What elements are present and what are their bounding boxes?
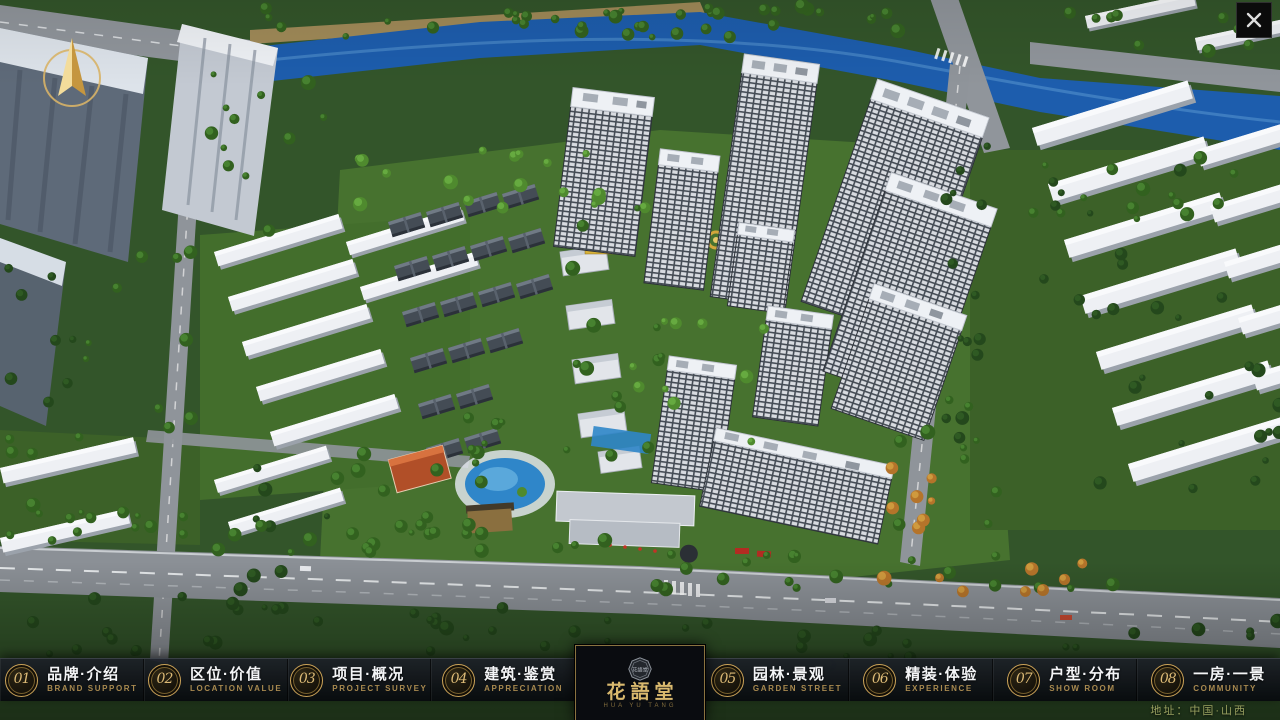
nav-num-08: 08: [1160, 671, 1176, 687]
svg-text:花語堂: 花語堂: [632, 665, 648, 673]
nav-item-project[interactable]: 03 项目·概况 PROJECT SURVEY: [288, 659, 432, 701]
nav-label-en: BRAND SUPPORT: [47, 685, 138, 693]
nav-group-right: 05 园林·景观 GARDEN STREET 06 精装·体验 EXPERIEN…: [705, 659, 1280, 701]
nav-label-cn: 项目·概况: [332, 667, 427, 683]
project-address: 地址：中国·山西: [1150, 702, 1247, 718]
close-button[interactable]: [1236, 2, 1272, 38]
nav-label-en: COMMUNITY: [1193, 685, 1266, 693]
nav-item-decoration[interactable]: 06 精装·体验 EXPERIENCE: [849, 659, 993, 701]
nav-item-community[interactable]: 08 一房·一景 COMMUNITY: [1137, 659, 1280, 701]
close-icon: [1245, 11, 1263, 29]
nav-label-cn: 户型·分布: [1049, 667, 1122, 683]
nav-badge-03: 03: [290, 664, 323, 697]
nav-badge-07: 07: [1007, 664, 1040, 697]
compass-icon: [38, 30, 106, 108]
nav-badge-04: 04: [442, 664, 475, 697]
nav-label-en: SHOW ROOM: [1049, 685, 1122, 693]
nav-label-en: LOCATION VALUE: [190, 685, 282, 693]
nav-label-cn: 一房·一景: [1193, 667, 1266, 683]
nav-label-cn: 精装·体验: [905, 667, 978, 683]
nav-label-en: APPRECIATION: [484, 685, 563, 693]
nav-label-en: EXPERIENCE: [905, 685, 978, 693]
nav-num-06: 06: [872, 671, 888, 687]
nav-label-en: PROJECT SURVEY: [332, 685, 427, 693]
nav-item-location[interactable]: 02 区位·价值 LOCATION VALUE: [144, 659, 288, 701]
nav-item-brand[interactable]: 01 品牌·介绍 BRAND SUPPORT: [0, 659, 144, 701]
nav-label-cn: 园林·景观: [753, 667, 842, 683]
logo-title: 花語堂: [601, 683, 678, 702]
nav-group-left: 01 品牌·介绍 BRAND SUPPORT 02 区位·价值 LOCATION…: [0, 659, 575, 701]
nav-label-cn: 建筑·鉴赏: [484, 667, 563, 683]
logo-emblem-icon: 花語堂: [628, 657, 652, 681]
nav-badge-08: 08: [1151, 664, 1184, 697]
nav-num-05: 05: [719, 671, 735, 687]
nav-badge-02: 02: [148, 664, 181, 697]
nav-badge-06: 06: [863, 664, 896, 697]
nav-num-02: 02: [157, 671, 173, 687]
nav-label-cn: 品牌·介绍: [47, 667, 138, 683]
nav-badge-01: 01: [5, 664, 38, 697]
nav-badge-05: 05: [711, 664, 744, 697]
nav-item-architecture[interactable]: 04 建筑·鉴赏 APPRECIATION: [431, 659, 575, 701]
aerial-map[interactable]: [0, 0, 1280, 720]
nav-label-en: GARDEN STREET: [753, 685, 842, 693]
nav-num-03: 03: [299, 671, 315, 687]
nav-num-04: 04: [451, 671, 467, 687]
nav-label-cn: 区位·价值: [190, 667, 282, 683]
nav-item-garden[interactable]: 05 园林·景观 GARDEN STREET: [705, 659, 849, 701]
bottom-navbar: 01 品牌·介绍 BRAND SUPPORT 02 区位·价值 LOCATION…: [0, 658, 1280, 701]
logo-panel[interactable]: 花語堂 花語堂 HUA YU TANG: [575, 645, 705, 720]
nav-num-01: 01: [14, 671, 30, 687]
app-window: 01 品牌·介绍 BRAND SUPPORT 02 区位·价值 LOCATION…: [0, 0, 1280, 720]
logo-subtitle: HUA YU TANG: [603, 703, 676, 709]
nav-item-floorplan[interactable]: 07 户型·分布 SHOW ROOM: [993, 659, 1137, 701]
nav-num-07: 07: [1016, 671, 1032, 687]
